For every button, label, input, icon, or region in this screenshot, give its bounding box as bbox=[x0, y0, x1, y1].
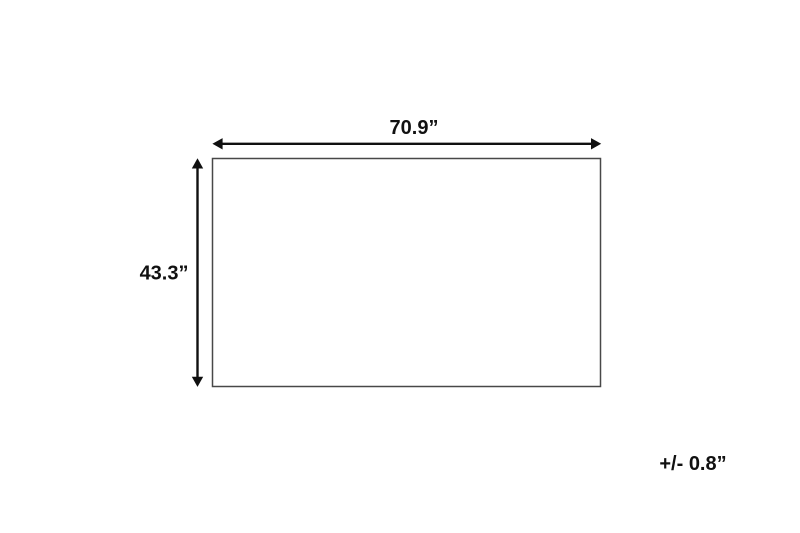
svg-text:43.3”: 43.3” bbox=[140, 263, 189, 285]
svg-text:70.9”: 70.9” bbox=[390, 117, 439, 139]
svg-text:+/- 0.8”: +/- 0.8” bbox=[659, 453, 726, 475]
